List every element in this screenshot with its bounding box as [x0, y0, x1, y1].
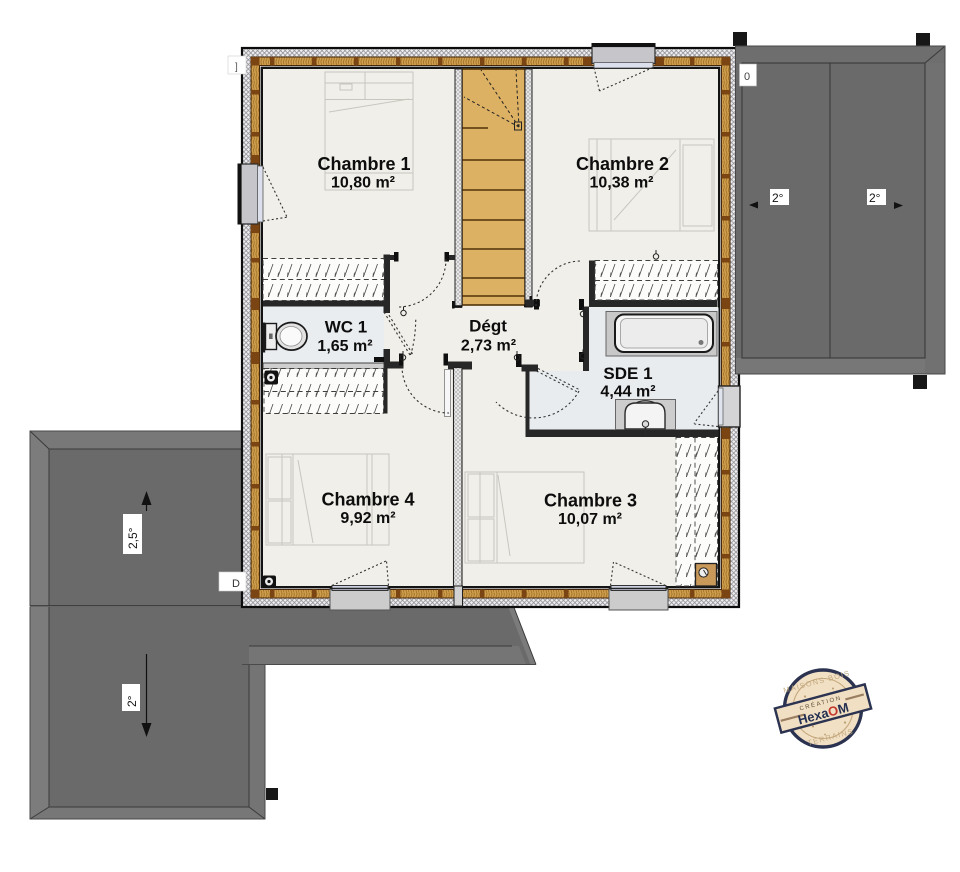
svg-text:Chambre 1: Chambre 1 — [317, 154, 410, 174]
svg-text:10,07 m²: 10,07 m² — [558, 511, 622, 528]
svg-text:1,65 m²: 1,65 m² — [317, 338, 372, 355]
svg-text:10,38 m²: 10,38 m² — [589, 175, 653, 192]
svg-text:Chambre 2: Chambre 2 — [576, 154, 669, 174]
svg-text:4,44 m²: 4,44 m² — [600, 384, 655, 401]
svg-text:]: ] — [235, 62, 238, 73]
svg-text:0: 0 — [744, 71, 750, 83]
svg-text:SDE 1: SDE 1 — [603, 364, 652, 383]
svg-text:10,80 m²: 10,80 m² — [331, 175, 395, 192]
svg-text:WC 1: WC 1 — [325, 318, 368, 337]
svg-text:Chambre 4: Chambre 4 — [321, 490, 414, 510]
svg-text:Chambre 3: Chambre 3 — [544, 491, 637, 511]
svg-text:Dégt: Dégt — [469, 317, 507, 336]
svg-text:D: D — [232, 578, 240, 590]
svg-text:9,92 m²: 9,92 m² — [340, 510, 395, 527]
svg-text:2°: 2° — [772, 191, 784, 205]
svg-text:2,73 m²: 2,73 m² — [461, 338, 516, 355]
svg-text:2°: 2° — [125, 695, 139, 707]
svg-text:2,5°: 2,5° — [126, 527, 140, 549]
svg-text:2°: 2° — [869, 191, 881, 205]
